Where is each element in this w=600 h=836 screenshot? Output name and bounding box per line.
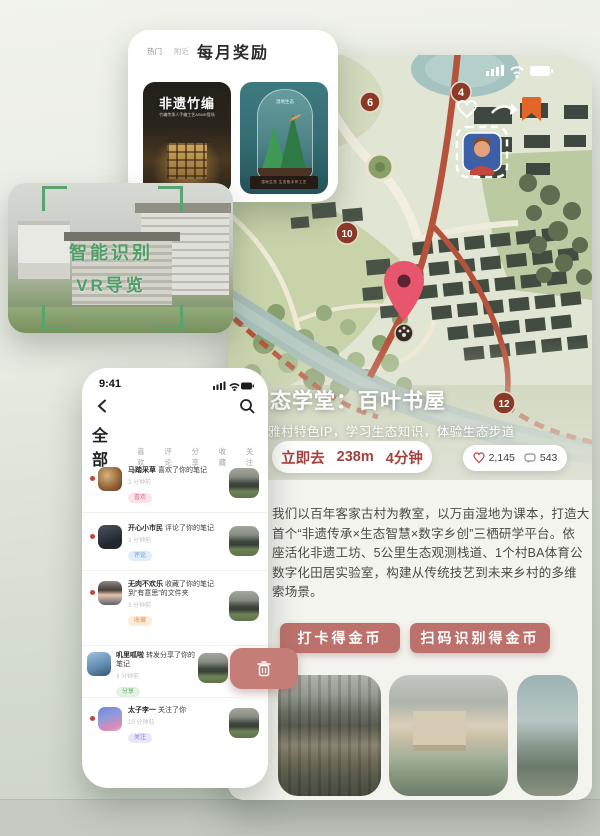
poi-photo-2[interactable] (389, 675, 508, 796)
poi-description: 我们以百年客家古村为教室，以万亩湿地为课本，打造大 首个“非遗传承×生态智慧×数… (272, 505, 590, 603)
glass-dome: 湿地生态 (257, 89, 313, 179)
plinth-caption: 湿地生态 生态瓶手作工艺 (250, 176, 318, 189)
svg-text:10: 10 (341, 229, 353, 240)
user-name[interactable]: 太子李一 (128, 707, 156, 714)
unread-dot (90, 476, 95, 481)
poi-photo-1[interactable] (278, 675, 381, 796)
action-text: 喜欢了你的笔记 (158, 467, 207, 474)
desc-line: 我们以百年客家古村为教室，以万亩湿地为课本，打造大 (272, 505, 590, 525)
poi-detail-panel: 我们以百年客家古村为教室，以万亩湿地为课本，打造大 首个“非遗传承×生态智慧×数… (228, 480, 592, 800)
type-badge: 喜欢 (128, 493, 152, 503)
status-time: 9:41 (99, 378, 121, 390)
user-name[interactable]: 无肉不欢乐 (128, 581, 163, 588)
viewfinder-corner-icon (42, 305, 67, 330)
unread-dot (90, 590, 95, 595)
divider (82, 570, 268, 571)
search-icon[interactable] (239, 398, 255, 414)
desc-line: 首个“非遗传承×生态智慧×数字乡创”三栖研学平台。依 (272, 525, 590, 545)
monthly-rewards-card: 热门 附近 每月奖励 非遗竹编 竹编传承人手编工艺ASMR登场 湿地生态 湿地生… (128, 30, 338, 202)
svg-text:6: 6 (367, 97, 373, 109)
user-name[interactable]: 开心小市民 (128, 525, 163, 532)
divider (82, 697, 268, 698)
avatar[interactable] (98, 525, 122, 549)
svg-text:4: 4 (458, 87, 465, 99)
go-label: 立即去 (281, 447, 325, 468)
type-badge: 关注 (128, 733, 152, 743)
note-thumbnail[interactable] (229, 591, 259, 621)
notification-row[interactable]: 太子李一 关注了你 10 分钟前 关注 (82, 703, 268, 753)
note-thumbnail[interactable] (229, 468, 259, 498)
note-thumbnail[interactable] (229, 708, 259, 738)
reward-item-caption: 竹编传承人手编工艺ASMR登场 (143, 112, 231, 118)
duration-label: 4分钟 (386, 447, 423, 468)
svg-text:12: 12 (498, 399, 510, 410)
viewfinder-corner-icon (42, 186, 67, 211)
user-name[interactable]: 马踏采草 (128, 467, 156, 474)
timestamp: 3 分钟前 (128, 535, 226, 544)
stats-pill[interactable]: 2,145 543 (463, 445, 567, 471)
desc-line: 座活化非遗工坊、5公里生态观测栈道、1个村BA体育公 (272, 544, 590, 564)
vr-scan-card[interactable]: 智能识别 VR导览 (8, 183, 233, 333)
type-badge: 评论 (128, 551, 152, 561)
viewfinder-corner-icon (158, 305, 183, 330)
scan-coins-button[interactable]: 扫码识别得金币 (410, 623, 550, 653)
divider (82, 645, 268, 646)
distance-label: 238m (337, 449, 374, 465)
comments-count: 543 (540, 452, 558, 464)
navigate-button[interactable]: 立即去 238m 4分钟 (272, 441, 432, 473)
poi-photo-3[interactable] (517, 675, 578, 796)
notification-row[interactable]: 无肉不欢乐 收藏了你的笔记到“有意思”的文件夹 3 分钟前 收藏 (82, 577, 268, 643)
back-icon[interactable] (95, 398, 111, 414)
checkin-coins-button[interactable]: 打卡得金币 (280, 623, 400, 653)
action-text: 关注了你 (158, 707, 186, 714)
note-thumbnail[interactable] (198, 653, 228, 683)
type-badge: 分享 (116, 687, 140, 697)
smart-recognition-label: 智能识别 (42, 239, 180, 265)
dome-label: 湿地生态 (258, 99, 312, 105)
status-icons (213, 379, 255, 391)
user-name[interactable]: 叽里呱啦 (116, 652, 144, 659)
lantern-house (167, 143, 207, 179)
notification-row[interactable]: 开心小市民 评论了你的笔记 3 分钟前 评论 (82, 521, 268, 571)
poi-title: 态学堂：百叶书屋 (270, 385, 446, 415)
viewfinder-corner-icon (158, 186, 183, 211)
battery-icon (530, 66, 550, 76)
poi-marker[interactable] (395, 324, 413, 342)
timestamp: 10 分钟前 (128, 717, 226, 726)
like-heart-icon (473, 452, 485, 464)
action-text: 评论了你的笔记 (165, 525, 214, 532)
desc-line: 数字化田居实验室，构建从传统技艺到未来乡村的多维 (272, 564, 590, 584)
marker-6[interactable]: 6 (360, 92, 380, 112)
notification-row[interactable]: 马踏采草 喜欢了你的笔记 2 分钟前 喜欢 (82, 463, 268, 513)
desc-line: 索场景。 (272, 583, 590, 603)
marker-10[interactable]: 10 (336, 222, 358, 244)
rewards-title: 每月奖励 (128, 39, 338, 63)
dragonfly (291, 114, 301, 120)
reward-item-terrarium[interactable]: 湿地生态 湿地生态 生态瓶手作工艺 (240, 82, 328, 194)
timestamp: 3 分钟前 (128, 600, 226, 609)
marker-12[interactable]: 12 (493, 392, 515, 414)
note-thumbnail[interactable] (229, 526, 259, 556)
likes-count: 2,145 (489, 452, 515, 464)
unread-dot (90, 716, 95, 721)
notifications-screen: 9:41 全部 喜欢 评论 分享 收藏 关注 马踏采草 喜欢了你的笔记 2 分钟… (82, 368, 268, 788)
type-badge: 收藏 (128, 616, 152, 626)
vr-tour-label: VR导览 (42, 271, 180, 296)
fern-plant (280, 114, 306, 170)
avatar[interactable] (98, 467, 122, 491)
notification-row-swiped[interactable]: 叽里呱啦 转发分享了你的笔记 3 分钟前 分享 (82, 648, 268, 698)
delete-button[interactable] (230, 648, 298, 689)
unread-dot (90, 534, 95, 539)
poi-subtitle: 雅村特色IP，学习生态知识，体验生态步道 (268, 421, 515, 440)
timestamp: 3 分钟前 (116, 671, 200, 680)
avatar[interactable] (98, 707, 122, 731)
trash-icon (257, 661, 271, 677)
comment-bubble-icon (524, 453, 536, 464)
marker-4[interactable]: 4 (451, 82, 471, 102)
table-edge (0, 799, 600, 836)
divider (82, 512, 268, 513)
avatar[interactable] (98, 581, 122, 605)
avatar[interactable] (87, 652, 111, 676)
reward-item-bamboo[interactable]: 非遗竹编 竹编传承人手编工艺ASMR登场 (143, 82, 231, 194)
reward-item-title: 非遗竹编 (143, 93, 231, 112)
lantern-house-roof (161, 130, 213, 143)
timestamp: 2 分钟前 (128, 477, 226, 486)
